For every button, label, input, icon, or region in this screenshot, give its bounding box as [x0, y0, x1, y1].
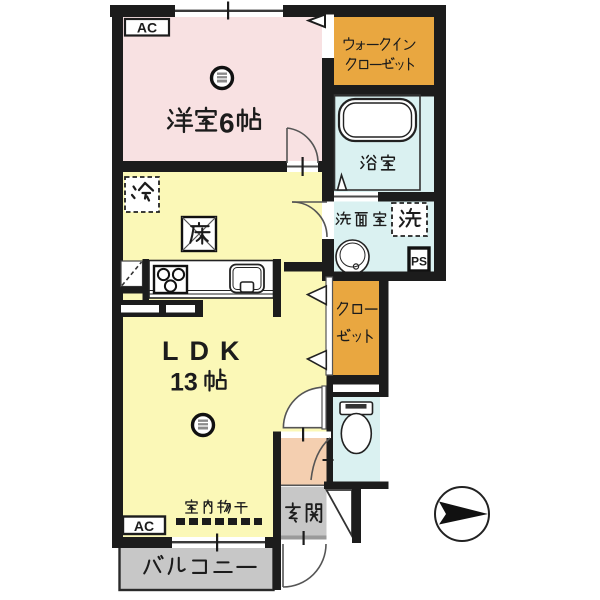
svg-text:PS: PS: [411, 255, 427, 269]
svg-text:LDK: LDK: [162, 336, 251, 366]
svg-text:6: 6: [219, 108, 235, 139]
svg-text:AC: AC: [134, 518, 154, 534]
svg-text:13: 13: [170, 369, 198, 397]
svg-text:AC: AC: [137, 20, 157, 36]
